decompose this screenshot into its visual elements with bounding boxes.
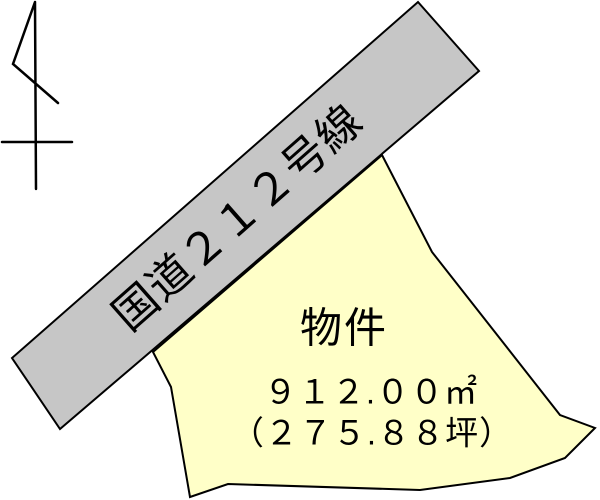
land-plot-map: 国道２１２号線 物件 ９１２.００㎡ （２７５.８８坪）: [0, 0, 600, 500]
parcel-area-m2-label: ９１２.００㎡: [264, 374, 478, 411]
parcel-area-tsubo-label: （２７５.８８坪）: [231, 415, 513, 452]
parcel-name-label: 物件: [300, 305, 388, 352]
map-figure: 国道２１２号線 物件 ９１２.００㎡ （２７５.８８坪）: [0, 0, 600, 500]
north-arrow-icon: [2, 2, 72, 189]
